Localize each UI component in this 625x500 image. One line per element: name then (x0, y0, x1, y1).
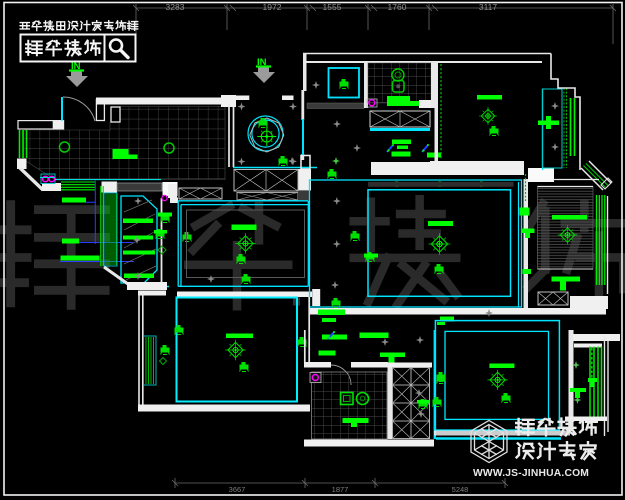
svg-text:3667: 3667 (229, 485, 246, 494)
svg-text:1972: 1972 (263, 2, 282, 12)
svg-text:1555: 1555 (323, 2, 342, 12)
svg-text:WWW.JS-JINHUA.COM: WWW.JS-JINHUA.COM (473, 468, 589, 479)
svg-text:5248: 5248 (452, 485, 469, 494)
svg-text:3283: 3283 (166, 2, 185, 12)
svg-text:3117: 3117 (479, 2, 498, 12)
svg-text:1877: 1877 (332, 485, 349, 494)
svg-text:1760: 1760 (388, 2, 407, 12)
